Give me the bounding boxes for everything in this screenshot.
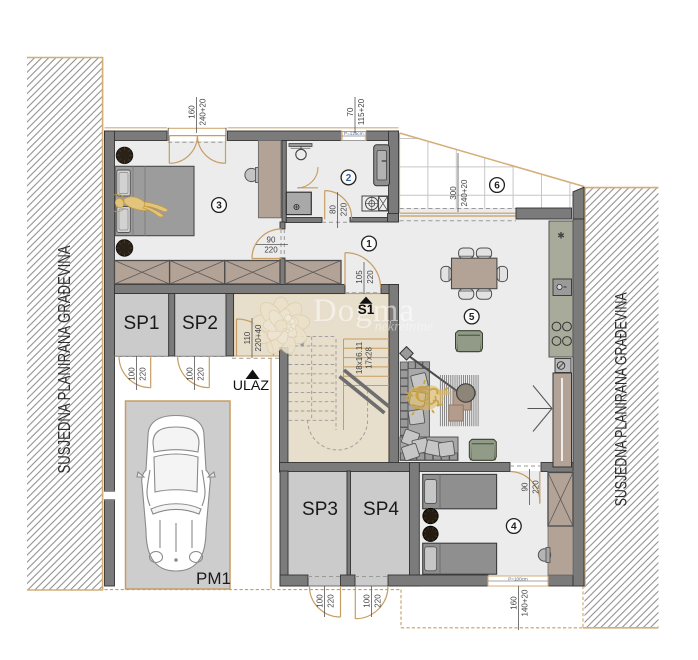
svg-text:4: 4 [511,522,517,533]
svg-text:220: 220 [374,594,383,608]
svg-text:nekretnine: nekretnine [375,320,434,335]
svg-text:P=125cm: P=125cm [344,131,364,136]
svg-text:1: 1 [366,239,372,250]
svg-text:6: 6 [494,181,500,192]
svg-text:220: 220 [366,270,375,284]
svg-text:SUSJEDNA PLANIRANA GRAĐEVINA: SUSJEDNA PLANIRANA GRAĐEVINA [54,245,74,473]
svg-text:220: 220 [327,594,336,608]
svg-text:17x28: 17x28 [365,347,374,369]
svg-text:220: 220 [340,202,349,216]
svg-text:SP1: SP1 [124,313,160,334]
svg-text:115+20: 115+20 [357,98,366,125]
svg-text:SP2: SP2 [182,313,218,334]
svg-text:220: 220 [532,480,541,494]
svg-text:105: 105 [355,270,364,284]
svg-text:220: 220 [139,367,148,381]
svg-text:ULAZ: ULAZ [233,378,270,394]
svg-text:220: 220 [197,367,206,381]
svg-text:90: 90 [521,482,530,491]
svg-text:70: 70 [346,107,355,116]
svg-text:SP4: SP4 [363,499,399,520]
svg-text:✱: ✱ [557,231,565,241]
svg-text:100: 100 [363,594,372,608]
svg-text:100: 100 [186,367,195,381]
svg-text:100: 100 [316,594,325,608]
svg-text:S1: S1 [358,302,375,317]
svg-text:160: 160 [510,596,519,610]
svg-text:80: 80 [329,205,338,214]
svg-text:18x16.11: 18x16.11 [355,341,364,374]
svg-text:110: 110 [243,331,252,344]
svg-text:160: 160 [188,105,197,119]
svg-text:100: 100 [128,367,137,381]
svg-text:240+20: 240+20 [199,98,208,125]
svg-text:SP3: SP3 [302,499,338,520]
svg-text:5: 5 [469,312,475,323]
svg-text:2: 2 [346,173,352,184]
svg-text:220+40: 220+40 [254,324,263,351]
svg-text:3: 3 [216,201,222,212]
svg-text:220: 220 [264,245,278,254]
svg-text:PM1: PM1 [196,569,231,588]
svg-text:300: 300 [449,186,458,200]
svg-text:P=100cm: P=100cm [508,577,528,582]
svg-text:SUSJEDNA PLANIRANA GRAĐEVINA: SUSJEDNA PLANIRANA GRAĐEVINA [612,292,631,506]
svg-text:140+20: 140+20 [521,589,530,616]
svg-text:90: 90 [267,235,276,244]
svg-text:240+20: 240+20 [460,179,469,206]
